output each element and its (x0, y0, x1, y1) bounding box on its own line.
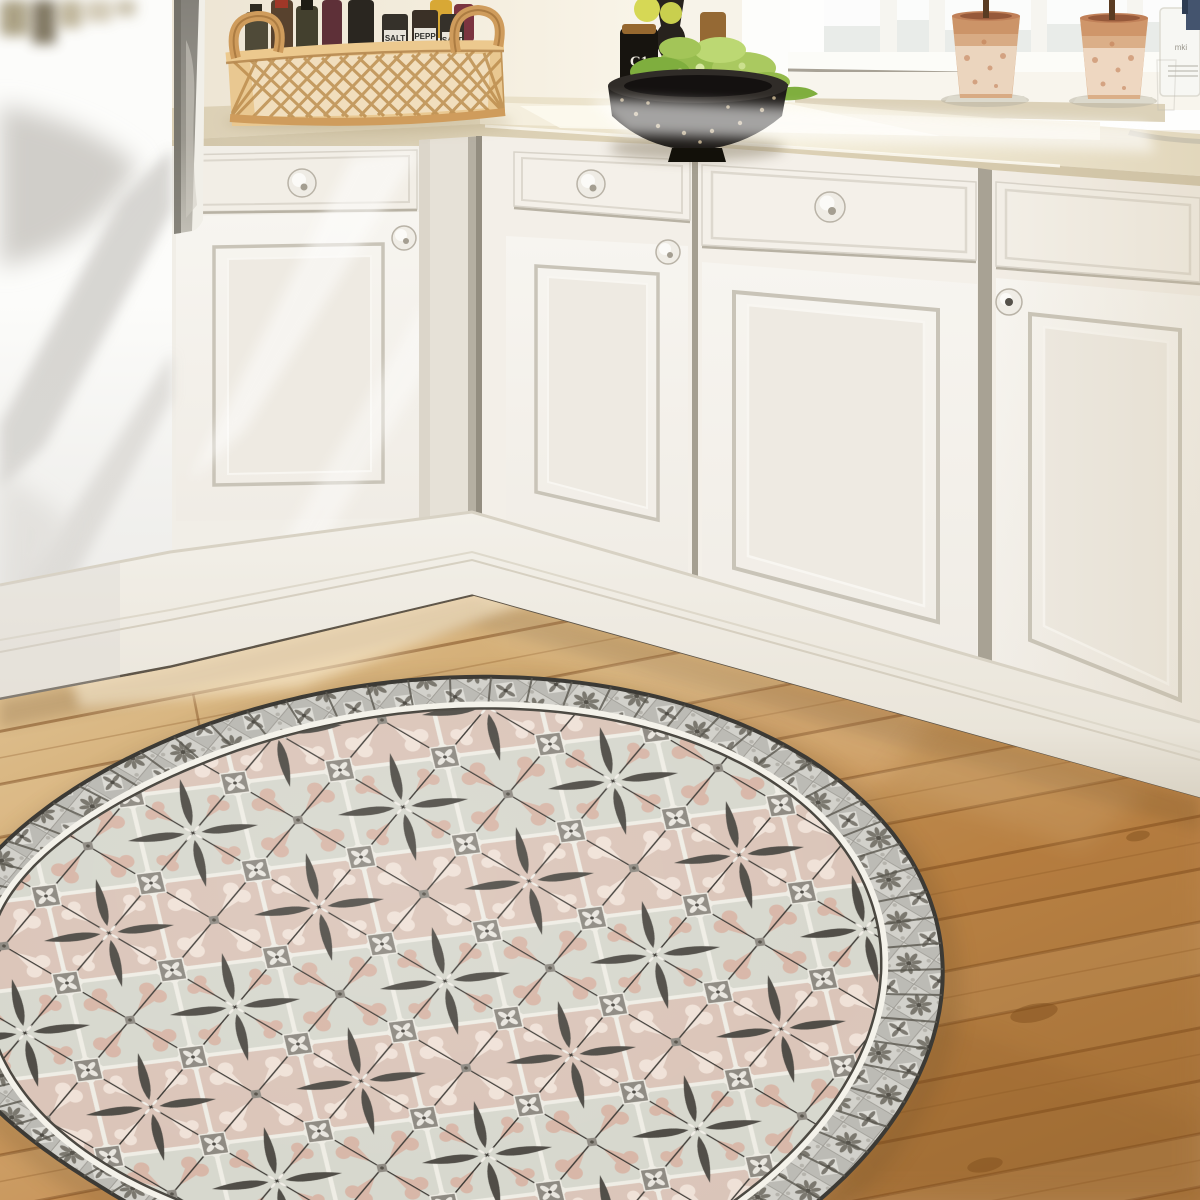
svg-text:PEPP: PEPP (414, 32, 436, 41)
svg-text:mki: mki (1175, 43, 1188, 52)
